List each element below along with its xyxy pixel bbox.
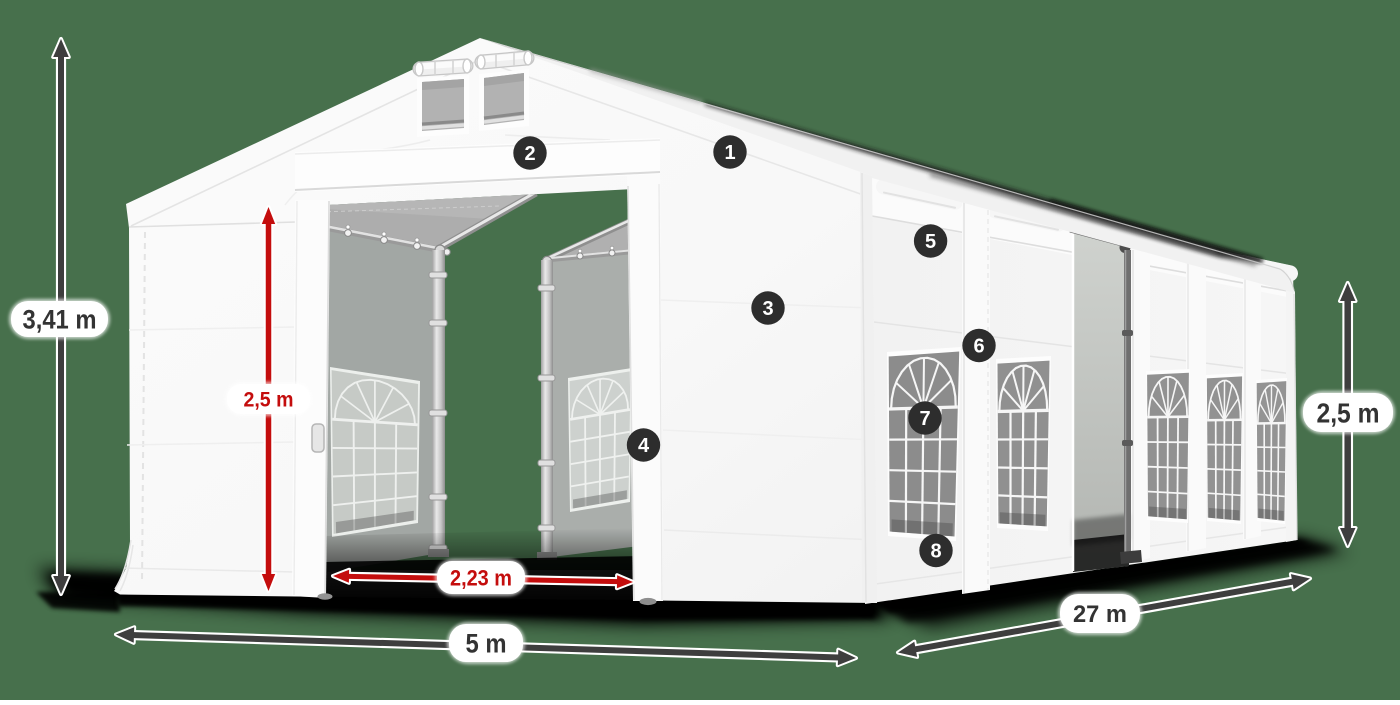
svg-text:5 m: 5 m — [466, 629, 507, 659]
svg-text:5: 5 — [925, 231, 936, 253]
svg-text:3: 3 — [762, 298, 773, 320]
svg-text:8: 8 — [930, 541, 941, 563]
svg-text:4: 4 — [638, 435, 650, 457]
svg-text:2,5 m: 2,5 m — [1317, 397, 1380, 428]
svg-text:6: 6 — [973, 336, 984, 358]
svg-text:2: 2 — [524, 143, 535, 165]
svg-text:1: 1 — [724, 142, 735, 164]
svg-text:3,41 m: 3,41 m — [23, 305, 97, 335]
svg-text:27 m: 27 m — [1073, 601, 1127, 628]
svg-text:2,23 m: 2,23 m — [450, 565, 512, 590]
svg-text:2,5 m: 2,5 m — [244, 388, 294, 412]
svg-text:7: 7 — [919, 408, 930, 430]
